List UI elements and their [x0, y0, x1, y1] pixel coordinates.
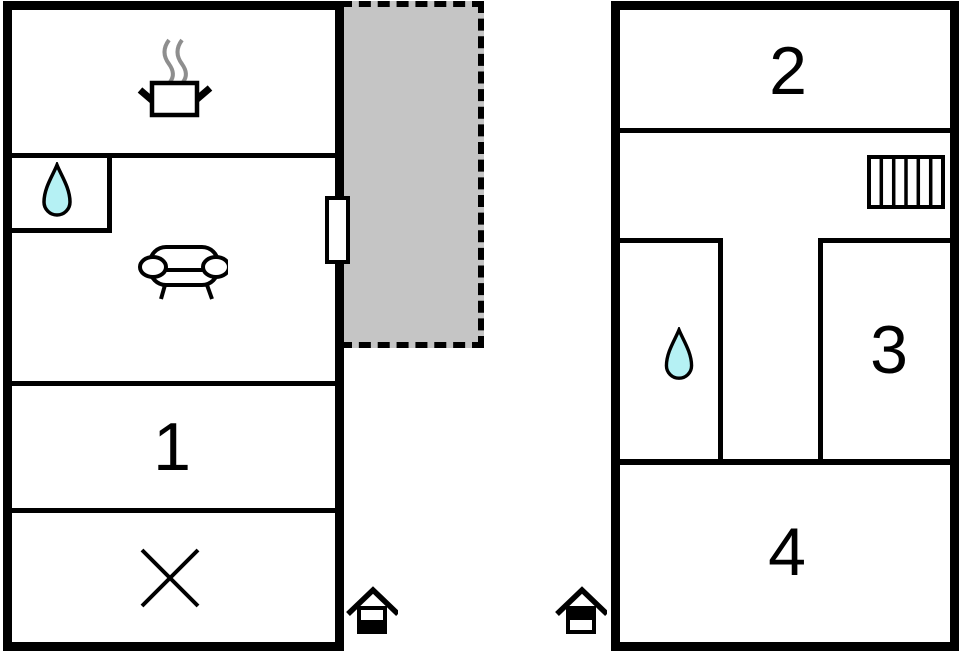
cooking-pot-icon	[136, 36, 214, 118]
room-3-label: 3	[870, 316, 908, 384]
sofa-icon	[136, 238, 228, 302]
cross-icon	[139, 548, 201, 608]
house-lower-half-filled-icon	[346, 586, 398, 634]
water-drop-icon	[661, 327, 697, 385]
floorplan-canvas: 1 2 3 4	[0, 0, 962, 652]
terrace-door	[325, 196, 350, 264]
terrace-area	[340, 1, 484, 348]
wall-bathroom2-right	[718, 238, 723, 462]
room-1-label: 1	[153, 413, 191, 481]
radiator-icon	[867, 155, 945, 209]
house-upper-half-filled-icon	[555, 586, 607, 634]
water-drop-icon	[40, 162, 74, 222]
room-2-label: 2	[769, 37, 807, 105]
room-4-label: 4	[768, 518, 806, 586]
